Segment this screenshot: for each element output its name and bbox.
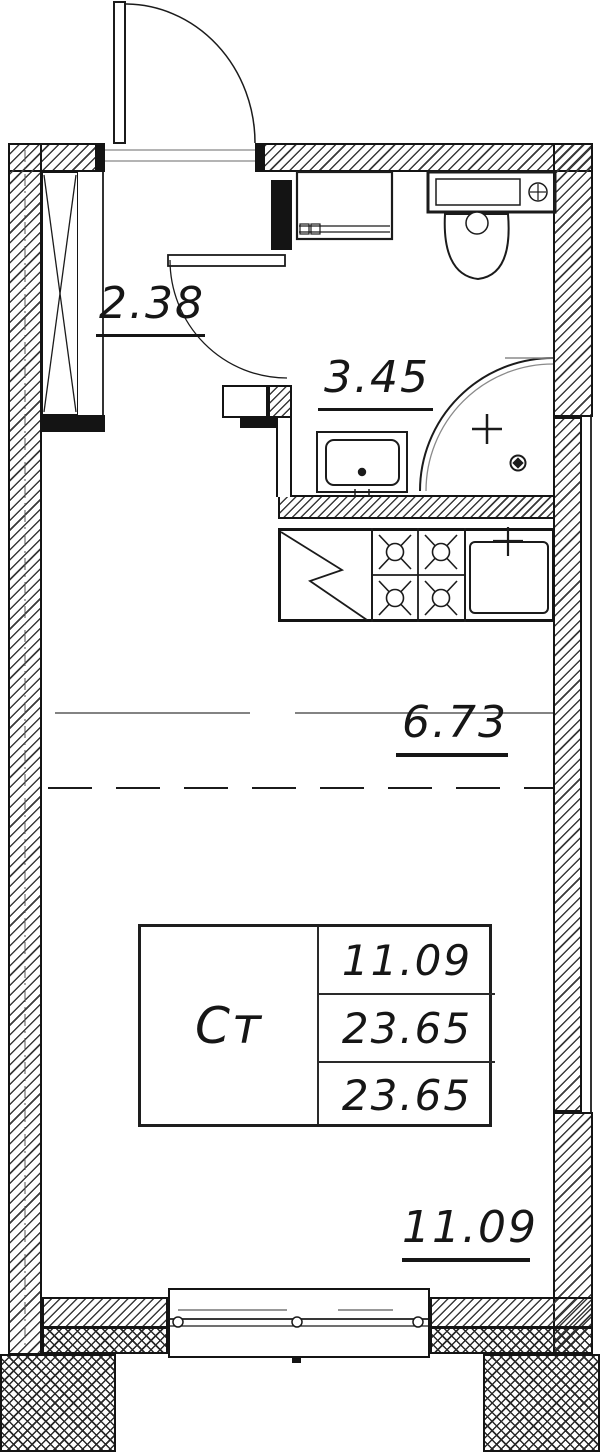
area-underline-bathroom [318, 408, 433, 411]
area-label-kitchen: 6.73 [396, 699, 514, 747]
entrance-door-arc [125, 4, 255, 143]
entrance-door-leaf [114, 2, 125, 143]
area-label-living: 11.09 [402, 1204, 534, 1252]
area-underline-living [402, 1258, 530, 1262]
floor-plan: 2.38 3.45 6.73 11.09 Ст 11.09 23.65 23.6… [0, 0, 600, 1452]
window-sash [170, 1310, 428, 1327]
summary-table-row-2: 23.65 [319, 995, 495, 1061]
counter-break-symbol [281, 532, 367, 620]
summary-table-row-3: 23.65 [319, 1063, 495, 1127]
bathroom-door-leaf [168, 255, 285, 266]
area-underline-kitchen [396, 753, 508, 757]
area-underline-hallway [96, 334, 205, 337]
summary-table-row-1: 11.09 [319, 927, 495, 994]
area-label-bathroom: 3.45 [318, 354, 436, 402]
summary-table: Ст 11.09 23.65 23.65 [138, 924, 492, 1127]
area-label-hallway: 2.38 [96, 280, 208, 328]
summary-table-type-cell: Ст [141, 927, 319, 1124]
